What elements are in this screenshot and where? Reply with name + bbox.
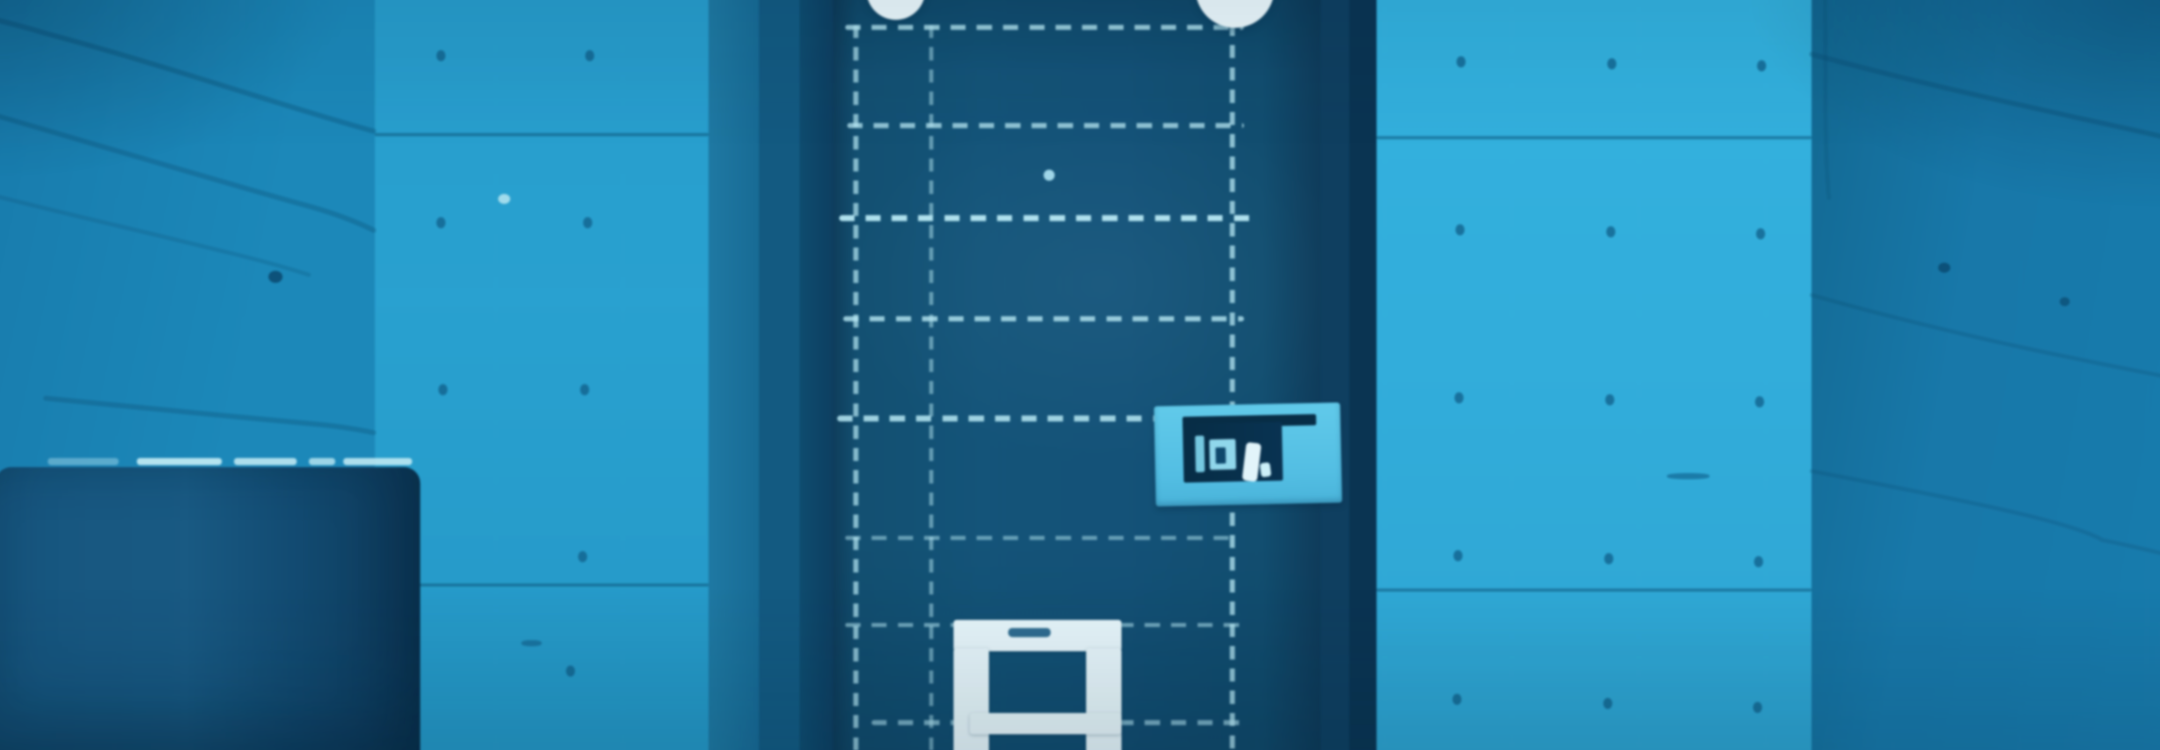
door-grid-dash-h [845,623,956,627]
door-grid-dash-h [872,720,961,725]
box-top-highlight [309,458,335,465]
hatch-frame-right [1086,648,1121,750]
hatch-dark-notch [1008,628,1051,637]
door-grid-dash-h [845,25,1244,30]
photo-layers [0,0,2160,750]
door-grid-dash-h [843,316,1244,321]
door-grid-dash-h [847,123,1244,128]
hatch-frame-crossbar [970,713,1122,734]
sign-glyph [1242,442,1262,482]
door-grid-dash-h [839,215,1252,221]
sign-glyph [1215,447,1225,463]
cell-room-photo: Blue-monochrome photograph of a concrete… [0,0,2160,750]
door-grid-dash-h [845,536,1240,540]
box-top-highlight [234,458,297,465]
hatch-frame-left [954,648,989,750]
box-top-highlight [48,458,119,465]
sign-illegible-marks [1154,402,1342,506]
box-top-highlight [137,458,222,465]
door-grid-dash-v [853,25,858,750]
sign-glyph [1260,462,1272,477]
dark-bin [0,467,420,750]
box-top-highlight [343,458,412,465]
door-grid-dash-h [1118,623,1241,627]
door-grid-dash-v [1230,23,1235,750]
door-peephole [1044,170,1055,181]
sign-glyph [1195,436,1205,473]
door-sign-plate [1154,402,1342,506]
door-grid-dash-v [929,25,933,750]
